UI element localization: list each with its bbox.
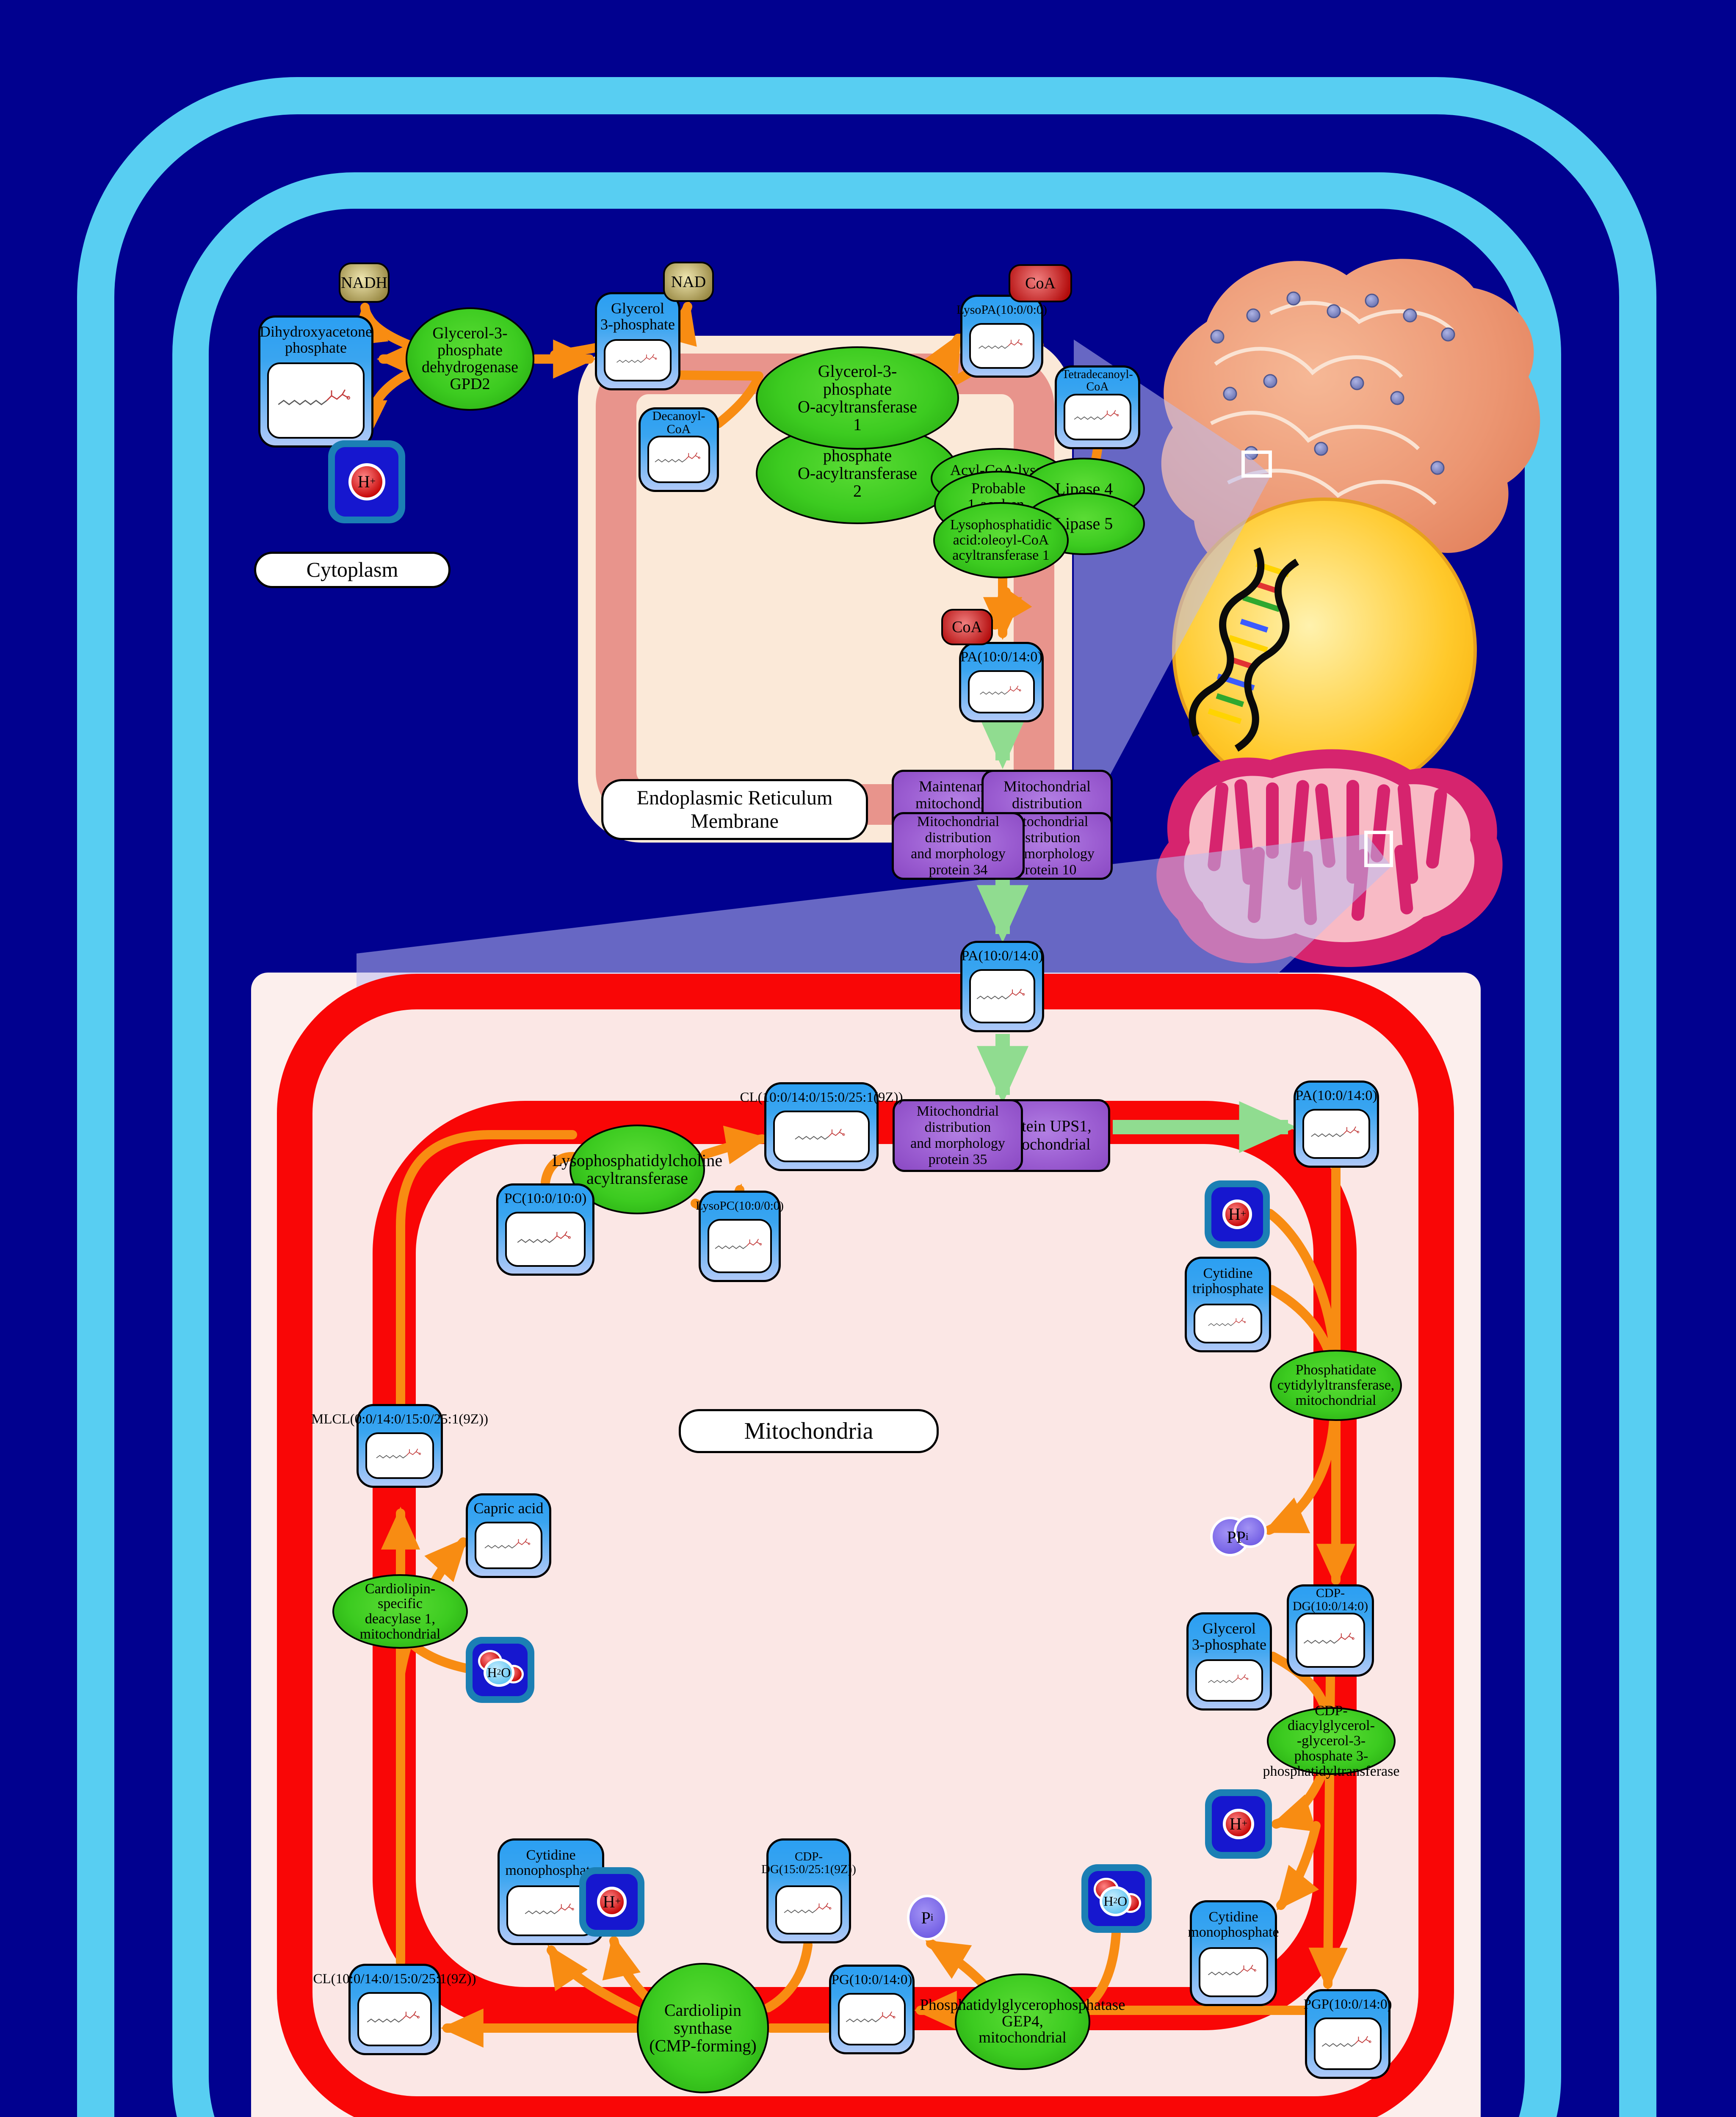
phosphate-badge[interactable]: Pi xyxy=(907,1894,948,1941)
enzyme-gep4[interactable]: Phosphatidylglycerophosphatase GEP4, mit… xyxy=(955,1973,1090,2070)
metabolite-name: PA(10:0/14:0) xyxy=(960,644,1042,670)
metabolite-lysopc[interactable]: LysoPC(10:0/0:0) xyxy=(699,1191,781,1282)
structure-image xyxy=(969,323,1034,369)
structure-image xyxy=(357,1992,432,2046)
metabolite-name: PA(10:0/14:0) xyxy=(1295,1083,1377,1109)
structure-image xyxy=(1296,1613,1365,1668)
metabolite-ctp[interactable]: Cytidine triphosphate xyxy=(1185,1257,1271,1352)
metabolite-name: CDP- DG(15:0/25:1(9Z)) xyxy=(761,1841,856,1885)
metabolite-capric[interactable]: Capric acid xyxy=(466,1493,551,1578)
water-badge[interactable]: H2O xyxy=(1081,1864,1152,1933)
structure-image xyxy=(1199,1947,1268,1997)
metabolite-pa-beam[interactable]: PA(10:0/14:0) xyxy=(960,941,1044,1032)
metabolite-name: CL(10:0/14:0/15:0/25:1(9Z)) xyxy=(740,1084,903,1111)
enzyme-cl-synthase[interactable]: Cardiolipin synthase (CMP-forming) xyxy=(637,1963,769,2093)
structure-image xyxy=(475,1522,542,1569)
structure-image xyxy=(838,1993,906,2045)
enzyme-cl-deacylase[interactable]: Cardiolipin- specific deacylase 1, mitoc… xyxy=(332,1574,468,1649)
metabolite-cdp-dg[interactable]: CDP-DG(10:0/14:0) xyxy=(1287,1584,1374,1677)
enzyme-gpd2[interactable]: Glycerol-3- phosphate dehydrogenase GPD2 xyxy=(406,307,534,411)
metabolite-lysopa[interactable]: LysoPA(10:0/0:0) xyxy=(960,295,1043,378)
cofactor-nad-badge[interactable]: NAD xyxy=(663,262,714,302)
metabolite-name: Tetradecanoyl-CoA xyxy=(1057,368,1138,394)
proton-box: H+ xyxy=(1212,1796,1265,1852)
proton-icon: H+ xyxy=(1223,1809,1254,1839)
enzyme-lpaat1[interactable]: Lysophosphatidic acid:oleoyl-CoA acyltra… xyxy=(933,502,1069,578)
metabolite-cl-top[interactable]: CL(10:0/14:0/15:0/25:1(9Z)) xyxy=(764,1082,879,1171)
metabolite-cl-bottom[interactable]: CL(10:0/14:0/15:0/25:1(9Z)) xyxy=(348,1964,441,2055)
metabolite-name: PC(10:0/10:0) xyxy=(498,1186,592,1212)
metabolite-name: MLCL(0:0/14:0/15:0/25:1(9Z)) xyxy=(311,1406,488,1432)
cofactor-coa-badge[interactable]: CoA xyxy=(1009,264,1072,302)
structure-image xyxy=(773,1111,870,1162)
proton-badge[interactable]: H+ xyxy=(1205,1180,1270,1248)
enzyme-pgs[interactable]: CDP- diacylglycerol- -glycerol-3- phosph… xyxy=(1267,1707,1396,1775)
structure-image xyxy=(969,969,1035,1023)
metabolite-mlcl[interactable]: MLCL(0:0/14:0/15:0/25:1(9Z)) xyxy=(357,1404,443,1488)
metabolite-name: PA(10:0/14:0) xyxy=(961,943,1043,969)
water-box: H2O xyxy=(473,1644,528,1696)
proton-box: H+ xyxy=(586,1874,638,1930)
metabolite-name: Glycerol 3-phosphate xyxy=(1189,1614,1270,1659)
metabolite-g3p-mito[interactable]: Glycerol 3-phosphate xyxy=(1186,1612,1272,1711)
cofactor-nadh-badge[interactable]: NADH xyxy=(339,263,390,303)
proton-badge[interactable]: H+ xyxy=(1205,1789,1272,1859)
metabolite-name: Cytidine triphosphate xyxy=(1187,1259,1269,1304)
water-molecule-icon: H2O xyxy=(1100,1886,1131,1916)
water-molecule-icon: H2O xyxy=(484,1658,514,1687)
metabolite-name: Glycerol 3-phosphate xyxy=(597,294,678,339)
structure-image xyxy=(1314,2018,1382,2070)
metabolite-tetradecanoyl-coa[interactable]: Tetradecanoyl-CoA xyxy=(1055,365,1140,449)
structure-image xyxy=(604,339,672,381)
structure-image xyxy=(647,436,710,483)
structure-image xyxy=(505,1212,586,1267)
water-badge[interactable]: H2O xyxy=(466,1637,534,1703)
structure-image xyxy=(968,670,1035,713)
metabolite-pg[interactable]: PG(10:0/14:0) xyxy=(829,1965,915,2054)
metabolite-name: PG(10:0/14:0) xyxy=(831,1967,912,1993)
metabolite-name: PGP(10:0/14:0) xyxy=(1303,1991,1392,2018)
metabolite-name: Cytidine monophosphate xyxy=(1188,1902,1279,1947)
protein-box[interactable]: Mitochondrial distribution and morpholog… xyxy=(893,1099,1023,1172)
proton-badge[interactable]: H+ xyxy=(328,440,405,523)
structure-image xyxy=(1064,394,1131,440)
pyrophosphate-badge[interactable]: PPi xyxy=(1210,1510,1265,1564)
metabolite-decanoyl-coa[interactable]: Decanoyl-CoA xyxy=(639,407,719,492)
protein-box[interactable]: Mitochondrial distribution and morpholog… xyxy=(892,812,1025,880)
metabolite-name: CDP-DG(10:0/14:0) xyxy=(1289,1586,1372,1613)
structure-image xyxy=(1302,1109,1370,1159)
metabolite-name: CL(10:0/14:0/15:0/25:1(9Z)) xyxy=(313,1966,476,1992)
metabolite-dhap[interactable]: Dihydroxyacetone phosphate xyxy=(258,315,373,448)
proton-icon: H+ xyxy=(348,463,385,501)
proton-box: H+ xyxy=(1211,1187,1263,1241)
structure-image xyxy=(1194,1304,1262,1343)
enzyme-gpat1[interactable]: Glycerol-3- phosphate O-acyltransferase … xyxy=(756,346,959,450)
metabolite-pgp[interactable]: PGP(10:0/14:0) xyxy=(1305,1989,1390,2079)
metabolite-cdp-dg2[interactable]: CDP- DG(15:0/25:1(9Z)) xyxy=(766,1838,851,1943)
metabolite-name: LysoPC(10:0/0:0) xyxy=(696,1193,784,1219)
structure-image xyxy=(708,1219,772,1273)
metabolite-name: Dihydroxyacetone phosphate xyxy=(260,318,372,362)
metabolite-name: Decanoyl-CoA xyxy=(641,409,717,436)
enzyme-cds[interactable]: Phosphatidate cytidylyltransferase, mito… xyxy=(1270,1350,1402,1421)
proton-box: H+ xyxy=(335,447,398,517)
water-box: H2O xyxy=(1088,1871,1145,1926)
metabolite-cmp-right[interactable]: Cytidine monophosphate xyxy=(1190,1900,1277,2006)
metabolite-name: Capric acid xyxy=(468,1495,549,1522)
metabolite-pc[interactable]: PC(10:0/10:0) xyxy=(496,1183,594,1276)
metabolite-g3p-cyto[interactable]: Glycerol 3-phosphate xyxy=(595,292,680,390)
structure-image xyxy=(1195,1659,1263,1702)
structure-image xyxy=(775,1885,842,1935)
metabolite-pa-mito[interactable]: PA(10:0/14:0) xyxy=(1294,1081,1379,1168)
proton-icon: H+ xyxy=(597,1887,627,1917)
cofactor-coa-badge[interactable]: CoA xyxy=(941,609,993,645)
structure-image xyxy=(267,362,365,439)
metabolite-pa-er[interactable]: PA(10:0/14:0) xyxy=(959,642,1044,722)
proton-icon: H+ xyxy=(1222,1199,1252,1229)
proton-badge[interactable]: H+ xyxy=(579,1867,644,1937)
structure-image xyxy=(365,1432,434,1479)
